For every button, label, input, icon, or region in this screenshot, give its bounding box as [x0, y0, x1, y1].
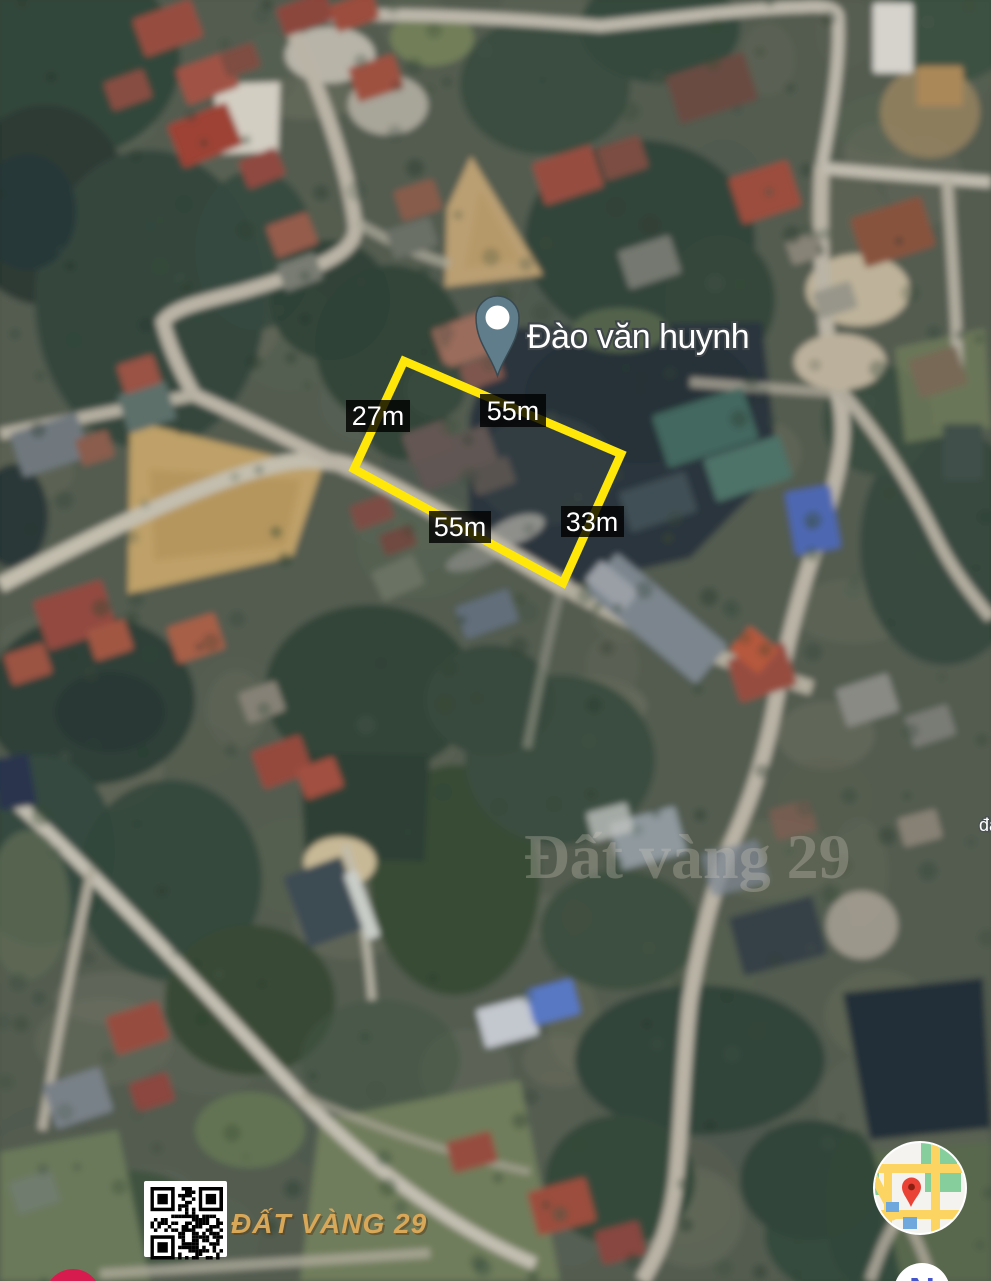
svg-text:ĐẤT VÀNG 29: ĐẤT VÀNG 29 [231, 1208, 427, 1239]
svg-text:55m: 55m [434, 512, 487, 542]
svg-text:Đất vàng 29: Đất vàng 29 [523, 821, 850, 892]
svg-text:Đào văn huynh: Đào văn huynh [527, 318, 749, 356]
svg-text:27m: 27m [352, 401, 405, 431]
svg-text:đá: đá [979, 815, 991, 835]
svg-text:55m: 55m [487, 396, 540, 426]
svg-text:33m: 33m [566, 507, 619, 537]
svg-text:N: N [909, 1270, 935, 1281]
